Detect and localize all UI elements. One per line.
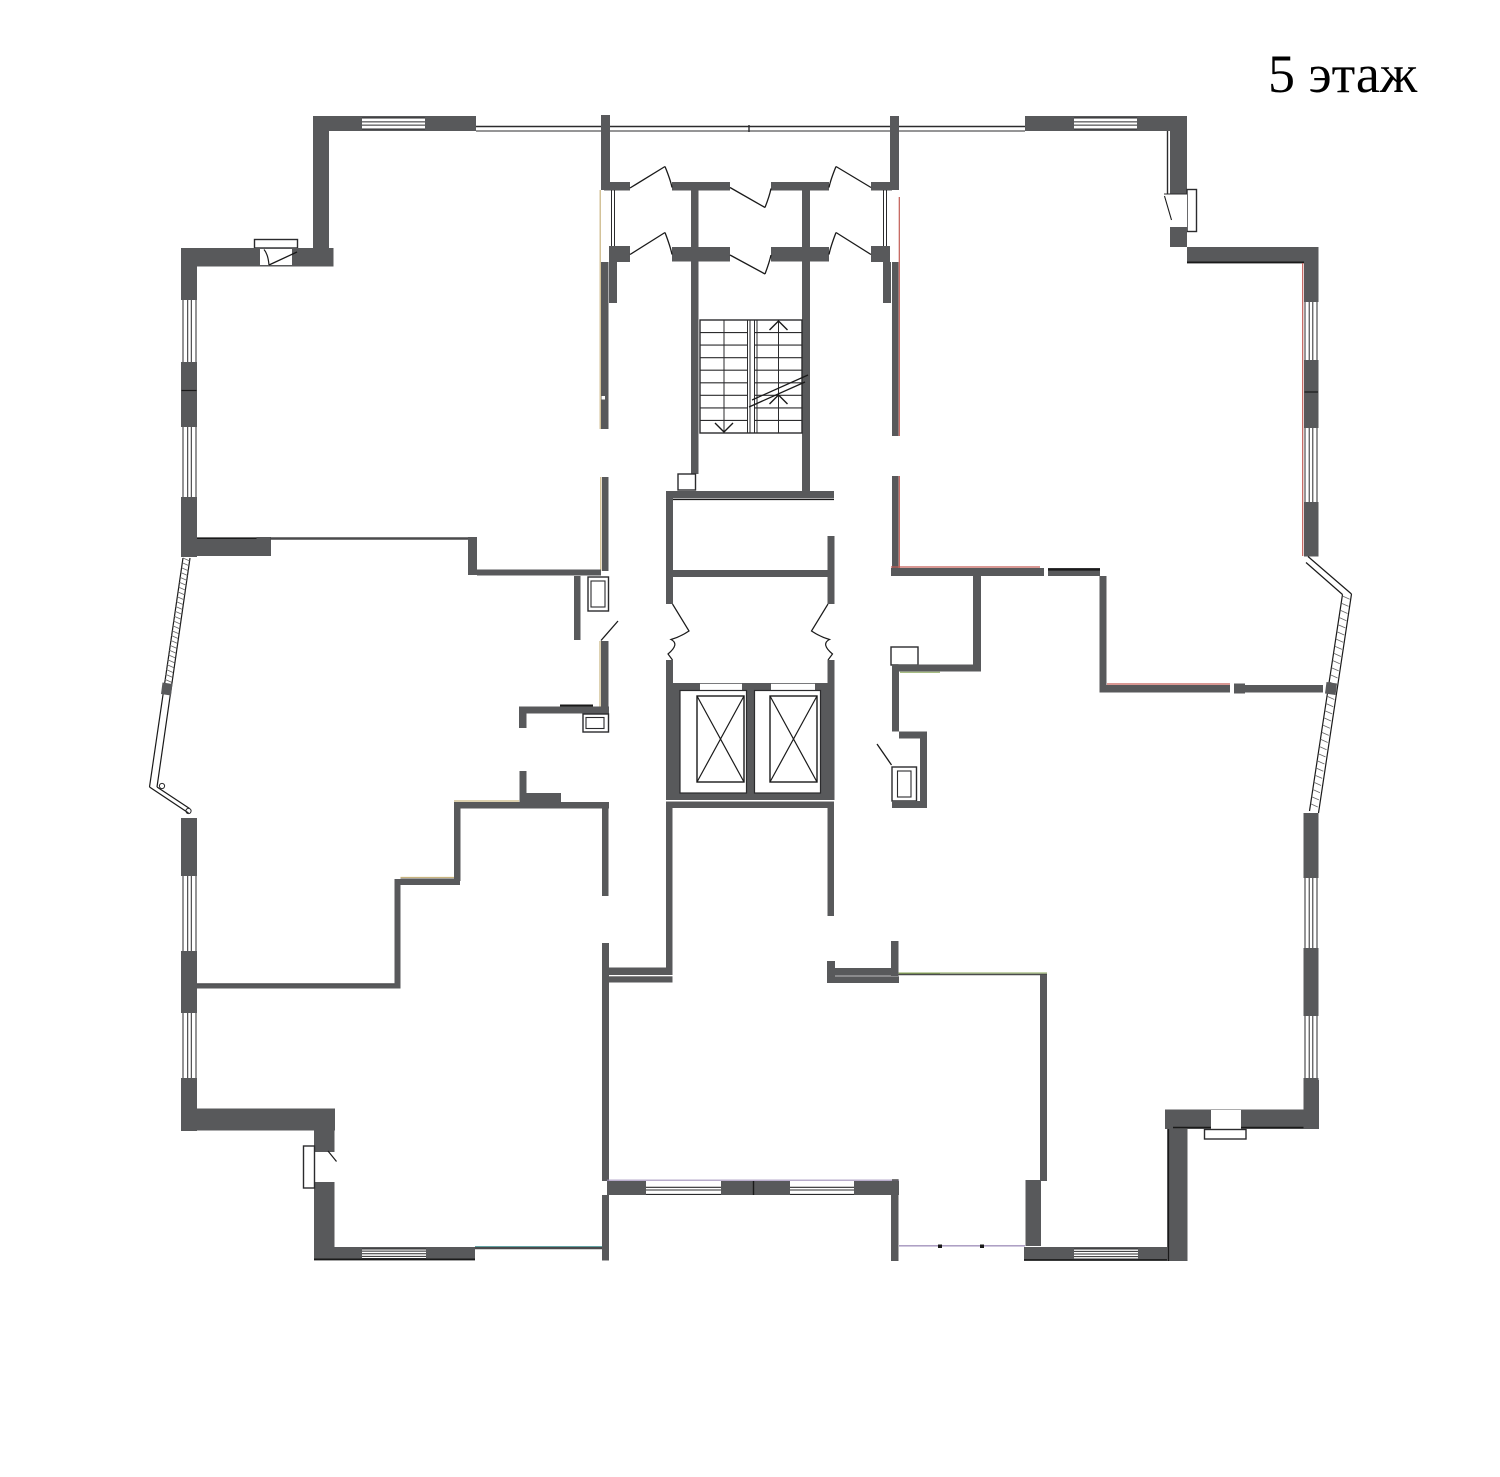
svg-text:5 этаж: 5 этаж [1268,44,1418,104]
